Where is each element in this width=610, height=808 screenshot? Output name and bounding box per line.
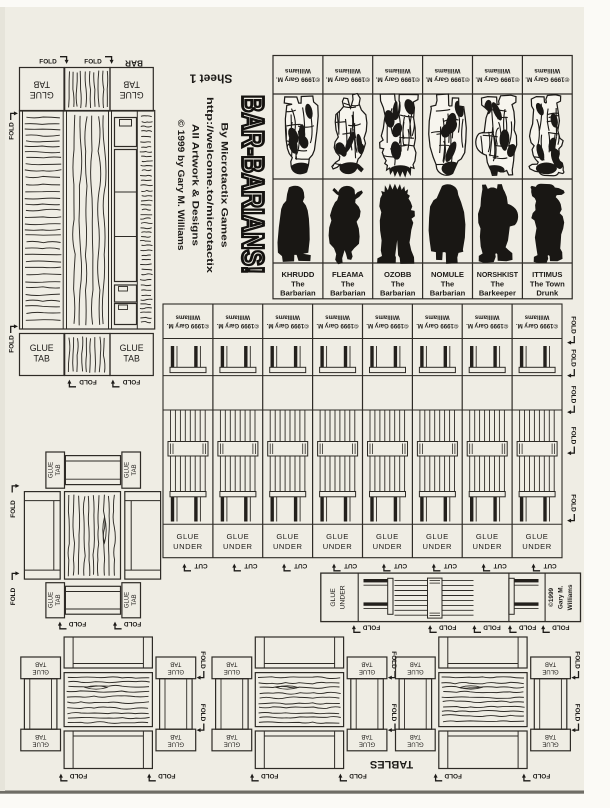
svg-text:GLUE: GLUE: [359, 740, 375, 746]
svg-text:The: The: [341, 280, 355, 289]
svg-text:FOLD: FOLD: [570, 494, 577, 512]
svg-text:FOLD: FOLD: [570, 349, 577, 367]
svg-text:FOLD: FOLD: [122, 378, 140, 385]
svg-text:TAB: TAB: [123, 354, 140, 364]
svg-text:CUT: CUT: [543, 562, 556, 569]
svg-text:FOLD: FOLD: [68, 620, 86, 627]
svg-text:TAB: TAB: [226, 733, 237, 739]
svg-text:TAB: TAB: [361, 733, 372, 739]
svg-text:GLUE: GLUE: [49, 462, 55, 478]
svg-text:Drunk: Drunk: [536, 289, 559, 298]
svg-text:Williams: Williams: [225, 314, 250, 321]
svg-text:KHRUDD: KHRUDD: [281, 270, 314, 279]
svg-text:FOLD: FOLD: [390, 651, 397, 669]
svg-text:©1999 Gary M.: ©1999 Gary M.: [366, 322, 408, 329]
svg-text:GLUE: GLUE: [224, 740, 240, 746]
svg-text:GLUE: GLUE: [276, 532, 299, 541]
svg-text:The: The: [441, 280, 455, 289]
svg-text:©1999 Gary M.: ©1999 Gary M.: [466, 322, 508, 329]
svg-text:FOLD: FOLD: [9, 122, 16, 140]
svg-text:GLUE: GLUE: [168, 668, 184, 674]
svg-text:Williams: Williams: [534, 67, 560, 74]
svg-text:Barbarian: Barbarian: [280, 289, 316, 298]
svg-text:BAR-BARIANS!: BAR-BARIANS!: [236, 95, 271, 274]
svg-text:GLUE: GLUE: [330, 588, 337, 607]
svg-text:The: The: [491, 280, 505, 289]
svg-text:GLUE: GLUE: [33, 740, 49, 746]
svg-text:The: The: [291, 280, 305, 289]
svg-text:TAB: TAB: [545, 733, 556, 739]
svg-text:TAB: TAB: [170, 661, 181, 667]
svg-text:FOLD: FOLD: [84, 59, 102, 66]
svg-text:FOLD: FOLD: [10, 500, 17, 518]
svg-text:©1999 Gary M.: ©1999 Gary M.: [416, 322, 458, 329]
svg-text:FOLD: FOLD: [9, 335, 16, 353]
svg-text:FOLD: FOLD: [570, 427, 577, 445]
svg-text:Williams: Williams: [474, 314, 499, 321]
svg-text:TAB: TAB: [545, 661, 556, 667]
svg-text:GLUE: GLUE: [407, 668, 423, 674]
svg-text:©1999 Gary M.: ©1999 Gary M.: [375, 76, 419, 84]
svg-text:GLUE: GLUE: [359, 668, 375, 674]
svg-text:Barbarian: Barbarian: [330, 289, 366, 298]
svg-text:CUT: CUT: [494, 562, 507, 569]
svg-text:UNDER: UNDER: [472, 542, 502, 551]
svg-text:FOLD: FOLD: [574, 704, 581, 722]
svg-text:FOLD: FOLD: [261, 772, 279, 779]
svg-text:Williams: Williams: [567, 584, 574, 610]
svg-text:GLUE: GLUE: [542, 740, 558, 746]
svg-text:NOMULE: NOMULE: [431, 270, 464, 279]
svg-text:FOLD: FOLD: [199, 704, 206, 722]
svg-text:GLUE: GLUE: [224, 668, 240, 674]
svg-text:BAR: BAR: [125, 59, 143, 68]
svg-text:GLUE: GLUE: [125, 462, 131, 478]
svg-text:GLUE: GLUE: [30, 90, 54, 100]
svg-text:Williams: Williams: [334, 67, 360, 74]
svg-text:FOLD: FOLD: [390, 704, 397, 722]
svg-text:Williams: Williams: [374, 314, 399, 321]
svg-text:GLUE: GLUE: [476, 532, 499, 541]
svg-text:ITTIMUS: ITTIMUS: [532, 270, 562, 279]
svg-text:FOLD: FOLD: [574, 651, 581, 669]
svg-text:TAB: TAB: [33, 79, 50, 89]
svg-text:Williams: Williams: [384, 67, 410, 74]
svg-text:CUT: CUT: [294, 562, 307, 569]
svg-text:Williams: Williams: [484, 67, 510, 74]
svg-text:GLUE: GLUE: [49, 592, 55, 608]
svg-text:GLUE: GLUE: [426, 532, 449, 541]
svg-text:The Town: The Town: [530, 280, 565, 289]
svg-text:CUT: CUT: [344, 562, 357, 569]
svg-text:Williams: Williams: [524, 314, 549, 321]
svg-text:UNDER: UNDER: [373, 542, 403, 551]
svg-text:GLUE: GLUE: [542, 668, 558, 674]
svg-text:FOLD: FOLD: [199, 651, 206, 669]
svg-text:FOLD: FOLD: [349, 772, 367, 779]
svg-text:By Microtactix Games: By Microtactix Games: [219, 123, 230, 248]
svg-text:FOLD: FOLD: [444, 772, 462, 779]
svg-text:UNDER: UNDER: [273, 542, 303, 551]
svg-text:CUT: CUT: [444, 562, 457, 569]
svg-text:Williams: Williams: [285, 67, 311, 74]
svg-text:GLUE: GLUE: [376, 532, 399, 541]
svg-text:Barbarian: Barbarian: [430, 289, 466, 298]
svg-text:FOLD: FOLD: [552, 624, 570, 631]
svg-text:UNDER: UNDER: [223, 542, 253, 551]
svg-text:Barkeeper: Barkeeper: [479, 289, 516, 298]
svg-text:©1999 Gary M.: ©1999 Gary M.: [475, 76, 519, 84]
svg-text:FOLD: FOLD: [10, 587, 17, 605]
svg-text:GLUE: GLUE: [120, 343, 144, 353]
svg-text:GLUE: GLUE: [526, 532, 549, 541]
svg-text:The: The: [391, 280, 405, 289]
svg-text:©1999 Gary M.: ©1999 Gary M.: [216, 322, 258, 329]
svg-text:FOLD: FOLD: [124, 620, 142, 627]
svg-text:FOLD: FOLD: [158, 772, 176, 779]
svg-text:UNDER: UNDER: [340, 585, 347, 609]
svg-text:Williams: Williams: [275, 314, 300, 321]
svg-text:FOLD: FOLD: [362, 624, 380, 631]
svg-text:©1999 Gary M.: ©1999 Gary M.: [525, 76, 569, 84]
svg-text:Williams: Williams: [175, 314, 200, 321]
svg-text:TAB: TAB: [132, 594, 138, 605]
svg-text:UNDER: UNDER: [423, 542, 453, 551]
svg-text:GLUE: GLUE: [119, 90, 143, 100]
svg-text:©1999 Gary M.: ©1999 Gary M.: [425, 76, 469, 84]
svg-text:CUT: CUT: [244, 562, 257, 569]
svg-text:FOLD: FOLD: [79, 378, 97, 385]
svg-text:FOLD: FOLD: [483, 624, 501, 631]
svg-text:GLUE: GLUE: [30, 343, 54, 353]
svg-text:GLUE: GLUE: [326, 532, 349, 541]
svg-text:FLEAMA: FLEAMA: [332, 270, 364, 279]
svg-text:TAB: TAB: [56, 594, 62, 605]
svg-text:GLUE: GLUE: [407, 740, 423, 746]
svg-text:Sheet 1: Sheet 1: [189, 72, 232, 86]
svg-text:FOLD: FOLD: [570, 316, 577, 334]
svg-text:FOLD: FOLD: [570, 386, 577, 404]
svg-text:GLUE: GLUE: [226, 532, 249, 541]
svg-text:http://welcome.to/microtactix: http://welcome.to/microtactix: [204, 97, 215, 274]
svg-text:©1999 Gary M.: ©1999 Gary M.: [167, 322, 209, 329]
svg-text:GLUE: GLUE: [33, 668, 49, 674]
svg-text:TAB: TAB: [361, 661, 372, 667]
svg-text:UNDER: UNDER: [522, 542, 552, 551]
svg-text:TAB: TAB: [35, 733, 46, 739]
svg-text:FOLD: FOLD: [439, 624, 457, 631]
svg-text:© 1999 by Gary M. Williams: © 1999 by Gary M. Williams: [175, 120, 186, 251]
svg-text:©1999 Gary M.: ©1999 Gary M.: [276, 76, 320, 84]
svg-text:Williams: Williams: [434, 67, 460, 74]
svg-text:©1999 Gary M.: ©1999 Gary M.: [326, 76, 370, 84]
svg-text:FOLD: FOLD: [39, 59, 57, 66]
svg-text:TAB: TAB: [170, 733, 181, 739]
svg-text:©1999 Gary M.: ©1999 Gary M.: [316, 322, 358, 329]
svg-text:TAB: TAB: [56, 464, 62, 475]
svg-text:TAB: TAB: [410, 733, 421, 739]
svg-text:GLUE: GLUE: [168, 740, 184, 746]
svg-text:CUT: CUT: [394, 562, 407, 569]
svg-text:NORSHKIST: NORSHKIST: [477, 272, 519, 279]
svg-text:TAB: TAB: [35, 661, 46, 667]
svg-text:FOLD: FOLD: [519, 624, 537, 631]
svg-text:Williams: Williams: [424, 314, 449, 321]
svg-text:©1999 Gary M.: ©1999 Gary M.: [516, 322, 558, 329]
svg-text:FOLD: FOLD: [69, 772, 87, 779]
svg-text:UNDER: UNDER: [173, 542, 203, 551]
svg-text:Gary M.: Gary M.: [558, 585, 565, 609]
svg-text:Barbarian: Barbarian: [380, 289, 416, 298]
svg-text:GLUE: GLUE: [125, 592, 131, 608]
svg-text:TAB: TAB: [410, 661, 421, 667]
svg-text:OZOBB: OZOBB: [384, 270, 412, 279]
svg-text:©1999 Gary M.: ©1999 Gary M.: [266, 322, 308, 329]
svg-text:All Artwork & Designs: All Artwork & Designs: [190, 124, 201, 246]
svg-text:TAB: TAB: [132, 464, 138, 475]
svg-text:GLUE: GLUE: [177, 532, 200, 541]
svg-text:UNDER: UNDER: [323, 542, 353, 551]
svg-text:TAB: TAB: [33, 354, 50, 364]
svg-text:CUT: CUT: [194, 562, 207, 569]
svg-text:Williams: Williams: [325, 314, 350, 321]
svg-text:TABLES: TABLES: [370, 758, 413, 770]
svg-text:TAB: TAB: [123, 79, 140, 89]
svg-text:FOLD: FOLD: [532, 772, 550, 779]
svg-text:TAB: TAB: [226, 661, 237, 667]
svg-text:©1999: ©1999: [547, 587, 555, 606]
